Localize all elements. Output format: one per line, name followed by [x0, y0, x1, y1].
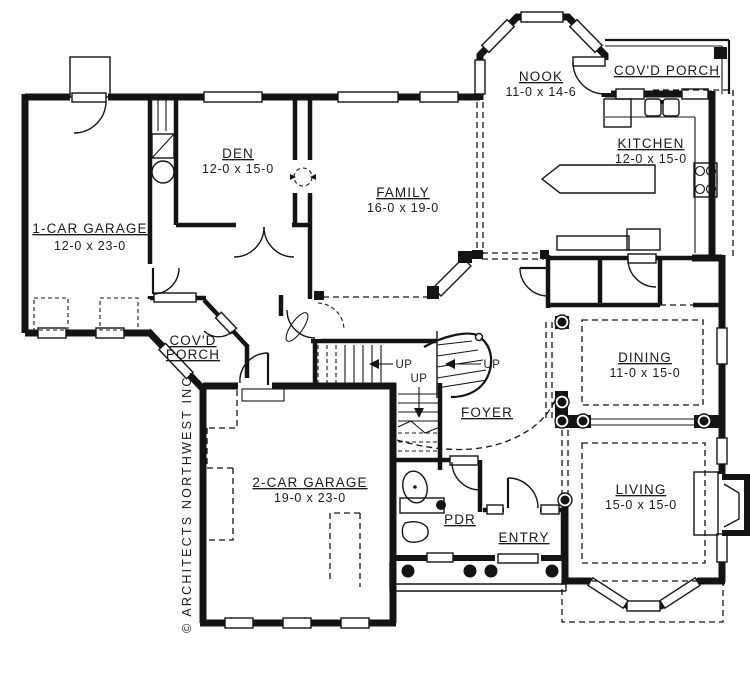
sidelite-entry-1	[487, 505, 503, 514]
window-dining-right	[717, 328, 727, 364]
column-dot	[558, 398, 567, 407]
label-nook: NOOK	[519, 69, 563, 84]
window-porchleft-top	[154, 293, 196, 302]
garage2-overhead-left	[207, 390, 237, 540]
kitchen-desk	[557, 236, 629, 250]
dims-dining: 11-0 x 15-0	[609, 366, 680, 380]
kitchen-counter-raised	[627, 229, 660, 250]
window-nook-diag-left	[482, 20, 514, 53]
porch-column	[546, 565, 559, 578]
window-nook-left	[475, 60, 485, 94]
dims-kitchen: 12-0 x 15-0	[615, 152, 687, 166]
column-dot	[558, 417, 567, 426]
window-living-right-2	[717, 534, 727, 562]
label-foyer: FOYER	[461, 405, 513, 420]
branding: © ARCHITECTS NORTHWEST INC.	[180, 370, 194, 633]
label-garage2: 2-CAR GARAGE	[252, 475, 367, 490]
pdr-counter-dot	[436, 500, 446, 510]
exterior-walls	[25, 17, 725, 623]
garage2-door-panel-2	[283, 618, 311, 628]
furnace-icon	[152, 161, 174, 183]
angled-opening	[314, 250, 549, 300]
opening-living-colonnade	[562, 430, 568, 495]
window-pdr-south	[427, 553, 453, 562]
stair-volute	[476, 334, 483, 341]
window-nook-top	[521, 12, 563, 22]
label-kitchen: KITCHEN	[618, 136, 685, 151]
window-family-1	[338, 92, 398, 102]
window-den	[204, 92, 262, 102]
arrow-up-lower	[414, 408, 424, 418]
stair-left-dashed-risers	[318, 345, 336, 383]
porch-slab-edge	[390, 562, 566, 591]
label-family: FAMILY	[376, 185, 430, 200]
kitchen-island	[542, 165, 655, 193]
label-up-right: UP	[484, 359, 501, 371]
column-dot	[700, 417, 709, 426]
garage2-overhead-right	[330, 513, 360, 587]
label-porch-left-1: COV'D	[169, 333, 216, 348]
label-den: DEN	[222, 146, 254, 161]
window-living-right-1	[717, 438, 727, 464]
window-bay-center	[627, 601, 660, 611]
door-hall2-arc	[520, 268, 548, 296]
dining-living-soffit	[585, 419, 698, 425]
entry-porch	[390, 562, 566, 591]
label-pdr: PDR	[444, 512, 476, 527]
hearth	[694, 472, 718, 535]
label-up-left: UP	[396, 359, 413, 371]
door-pdr-leaf	[450, 456, 478, 465]
sink-bowl-right	[663, 99, 679, 116]
door-hall-arc	[153, 268, 179, 294]
door-porchleft-leaf	[216, 312, 237, 333]
dims-nook: 11-0 x 14-6	[505, 85, 576, 99]
arrow-up-left	[369, 359, 379, 369]
fridge-icon	[604, 99, 631, 127]
sidelite-entry-2	[541, 505, 559, 514]
dims-den: 12-0 x 15-0	[202, 162, 274, 176]
chimney-lines	[158, 100, 166, 131]
opening-dining-colonnade	[546, 322, 552, 418]
window-bay-right	[660, 578, 700, 608]
porch-column	[464, 565, 477, 578]
kitchen-fixtures	[542, 99, 717, 253]
dims-garage1: 12-0 x 23-0	[54, 239, 126, 253]
arrow-up-right	[445, 359, 455, 369]
garage1-door-track-1	[34, 298, 68, 330]
column-dot	[561, 496, 570, 505]
garage1-door-track-2	[100, 298, 138, 330]
label-garage1: 1-CAR GARAGE	[32, 221, 147, 236]
label-up-lower: UP	[411, 373, 428, 385]
column-dot	[579, 417, 588, 426]
columns	[555, 315, 723, 507]
column-dot	[558, 318, 567, 327]
porch-column	[485, 565, 498, 578]
porch-column	[402, 565, 415, 578]
window-kitchen-1	[616, 89, 644, 99]
pdr-fixtures	[399, 469, 446, 543]
door-mud-dashed-arc	[318, 303, 344, 330]
label-dining: DINING	[618, 350, 672, 365]
label-porch-left-2: PORCH	[166, 347, 220, 362]
window-nook-diag-right	[570, 20, 602, 53]
label-entry: ENTRY	[498, 530, 549, 545]
door-nook-leaf	[573, 57, 605, 66]
porch-corner-post	[714, 47, 727, 59]
door-den-left-arc	[234, 227, 264, 257]
architect-credit: © ARCHITECTS NORTHWEST INC.	[180, 370, 194, 633]
floor-plan-drawing: 1-CAR GARAGE 12-0 x 23-0 DEN 12-0 x 15-0…	[0, 0, 750, 697]
utility-fixtures	[152, 100, 174, 183]
opening-nook-hall	[482, 253, 544, 259]
garage2-door-panel-3	[341, 618, 369, 628]
stairs	[318, 331, 491, 460]
faucet-icon	[660, 100, 664, 104]
sink-bowl-left	[645, 99, 661, 116]
label-living: LIVING	[616, 482, 667, 497]
dims-living: 15-0 x 15-0	[605, 498, 677, 512]
door-pdr-arc	[452, 462, 480, 490]
dims-garage2: 19-0 x 23-0	[274, 491, 346, 505]
opening-family-nook	[477, 102, 483, 254]
entry-threshold	[498, 554, 538, 563]
label-porch-right: COV'D PORCH	[614, 63, 720, 78]
toilet-icon	[402, 522, 428, 543]
window-bay-left	[588, 578, 628, 608]
window-family-2	[420, 92, 458, 102]
floor-plan-page: 1-CAR GARAGE 12-0 x 23-0 DEN 12-0 x 15-0…	[0, 0, 750, 697]
door-garage1-leaf	[72, 93, 106, 102]
door-butler-leaf	[628, 254, 656, 263]
stair-lower-dashed	[398, 433, 440, 460]
garage2-door-panel-1	[225, 618, 253, 628]
door-garage1-arc	[74, 101, 106, 133]
den-family-niche	[290, 168, 316, 186]
niche-icon	[294, 168, 312, 186]
door-den-right-arc	[264, 227, 294, 257]
stair-cut-line	[398, 421, 440, 433]
door-entry-arc	[508, 478, 538, 508]
dims-family: 16-0 x 19-0	[367, 201, 439, 215]
